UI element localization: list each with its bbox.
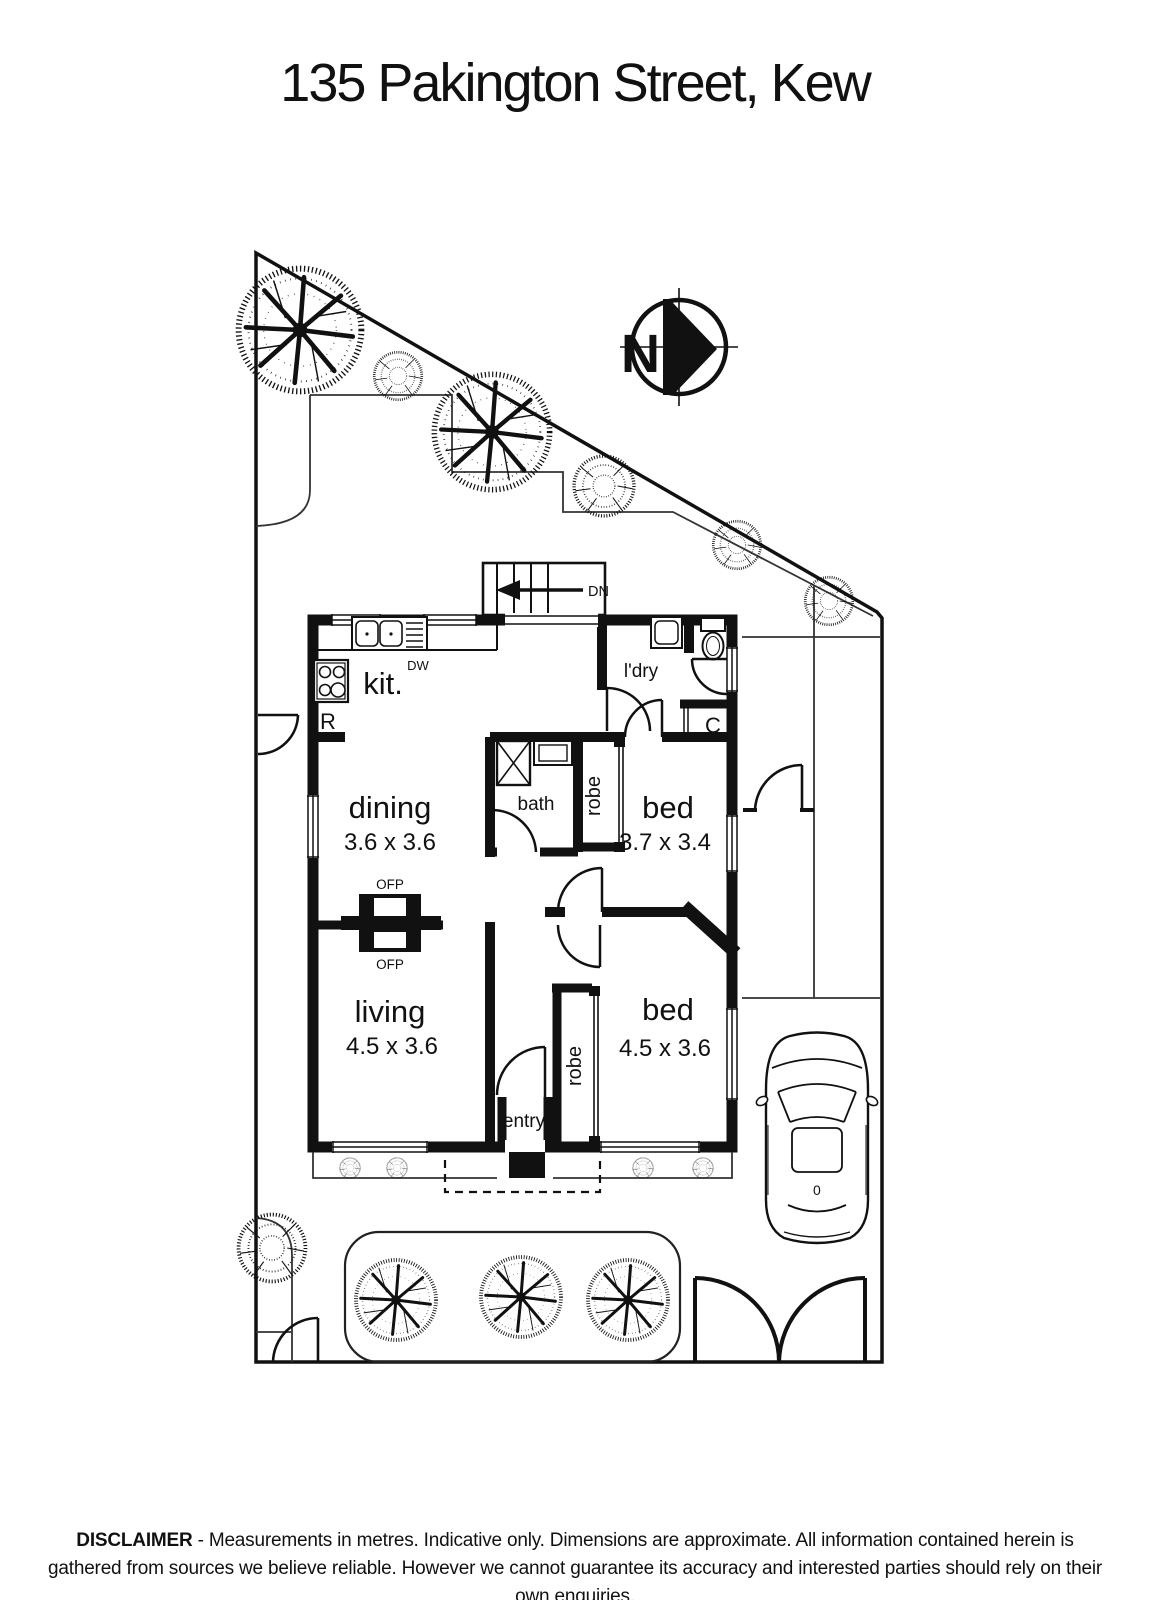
disclaimer-text: - Measurements in metres. Indicative onl… xyxy=(48,1530,1102,1600)
driveway-gates xyxy=(695,1278,865,1362)
bed-front-label: bed xyxy=(642,992,694,1027)
car: 0 xyxy=(755,1033,879,1244)
disclaimer-heading: DISCLAIMER xyxy=(76,1530,192,1551)
bed-front-dimensions: 4.5 x 3.6 xyxy=(619,1035,711,1062)
kitchen-label: kit. xyxy=(363,666,403,701)
north-arrow: N xyxy=(620,288,738,406)
ofp-top-label: OFP xyxy=(376,877,404,892)
side-gate-left xyxy=(258,715,298,754)
disclaimer: DISCLAIMER - Measurements in metres. Ind… xyxy=(45,1527,1105,1600)
ofp-bottom-label: OFP xyxy=(376,957,404,972)
entry-doorway-gap xyxy=(505,1140,545,1154)
bath-label: bath xyxy=(518,794,555,815)
laundry-label: l'dry xyxy=(624,661,659,682)
robe-front-label: robe xyxy=(564,1046,586,1086)
bed-rear-label: bed xyxy=(642,790,694,825)
dining-dimensions: 3.6 x 3.6 xyxy=(344,829,436,856)
floorplan-drawing: DN xyxy=(0,0,1150,1600)
pedestrian-gate xyxy=(273,1318,318,1362)
floorplan-page: 135 Pakington Street, Kew xyxy=(0,0,1150,1600)
laundry-trough xyxy=(651,617,682,648)
side-gate-right xyxy=(743,765,814,810)
robe-rear-label: robe xyxy=(583,776,605,816)
verandah xyxy=(313,1152,732,1192)
vanity-basin xyxy=(534,741,572,765)
entry-step xyxy=(509,1152,545,1178)
staircase: DN xyxy=(483,563,609,615)
stove xyxy=(314,660,348,702)
shower xyxy=(497,741,530,785)
dining-label: dining xyxy=(349,790,432,825)
car-marking: 0 xyxy=(813,1182,821,1198)
living-dimensions: 4.5 x 3.6 xyxy=(346,1033,438,1060)
entry-label: entry xyxy=(503,1111,546,1132)
stair-dn-label: DN xyxy=(588,584,609,600)
bed-rear-dimensions: 3.7 x 3.4 xyxy=(619,829,711,856)
refrigerator-label: R xyxy=(320,709,336,734)
north-label: N xyxy=(621,324,660,384)
cupboard-label: C xyxy=(705,713,721,738)
toilet xyxy=(701,618,725,660)
living-label: living xyxy=(355,994,426,1029)
dishwasher-label: DW xyxy=(407,658,429,673)
